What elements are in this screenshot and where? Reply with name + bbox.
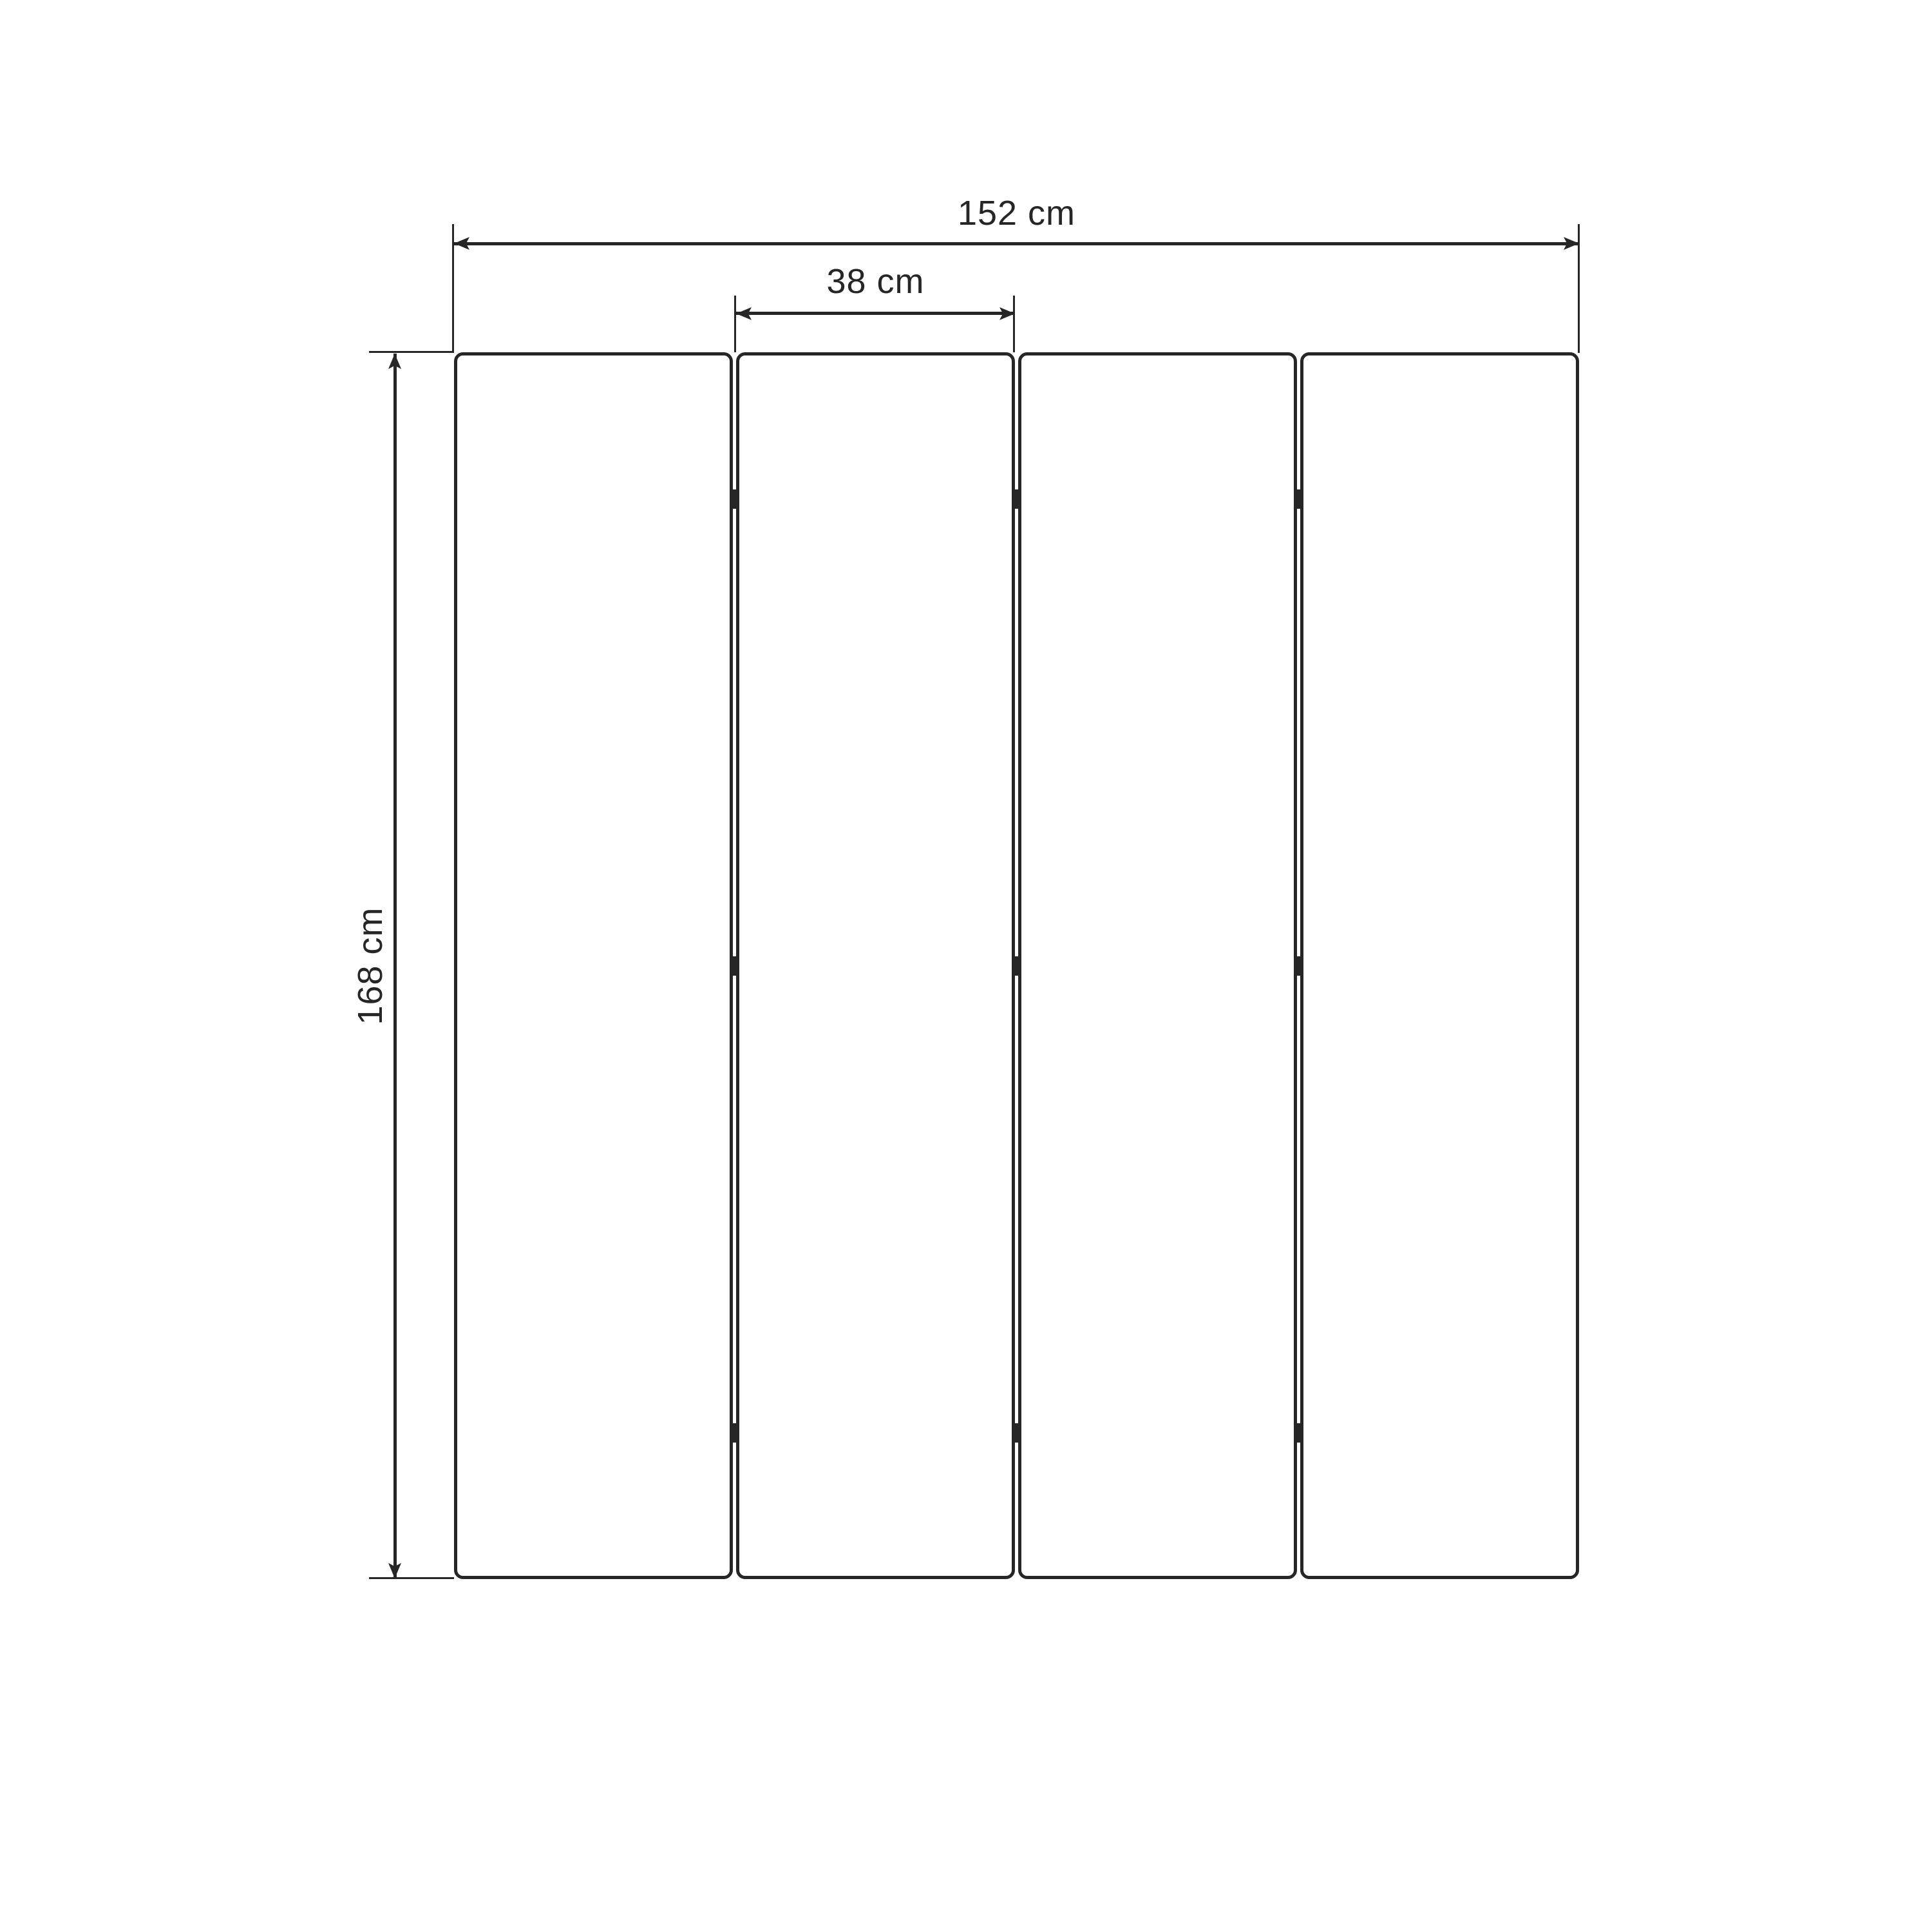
- hinge-mark: [730, 1423, 739, 1443]
- hinge-mark: [1012, 956, 1021, 976]
- panel-2: [736, 352, 1015, 1579]
- hinge-mark: [1294, 1423, 1303, 1443]
- hinge-mark: [730, 489, 739, 509]
- hinge-mark: [1012, 489, 1021, 509]
- extension-line-height-top: [369, 351, 454, 353]
- technical-drawing-canvas: 152 cm 38 cm 168 cm: [0, 0, 1932, 1932]
- hinge-mark: [1294, 489, 1303, 509]
- panel-1: [454, 352, 733, 1579]
- dimension-line-panel-width: [736, 312, 1015, 315]
- extension-line-panel-right: [1013, 296, 1015, 352]
- extension-line-height-bottom: [369, 1577, 454, 1579]
- extension-line-panel-left: [734, 296, 736, 352]
- hinge-mark: [1012, 1423, 1021, 1443]
- dimension-label-total-width: 152 cm: [454, 196, 1579, 231]
- panel-4: [1300, 352, 1579, 1579]
- dimension-label-panel-width: 38 cm: [736, 264, 1015, 299]
- hinge-mark: [1294, 956, 1303, 976]
- dimension-label-height: 168 cm: [353, 837, 388, 1095]
- hinge-mark: [730, 956, 739, 976]
- panel-3: [1018, 352, 1297, 1579]
- dimension-line-height: [393, 354, 397, 1578]
- dimension-line-total-width: [454, 242, 1579, 245]
